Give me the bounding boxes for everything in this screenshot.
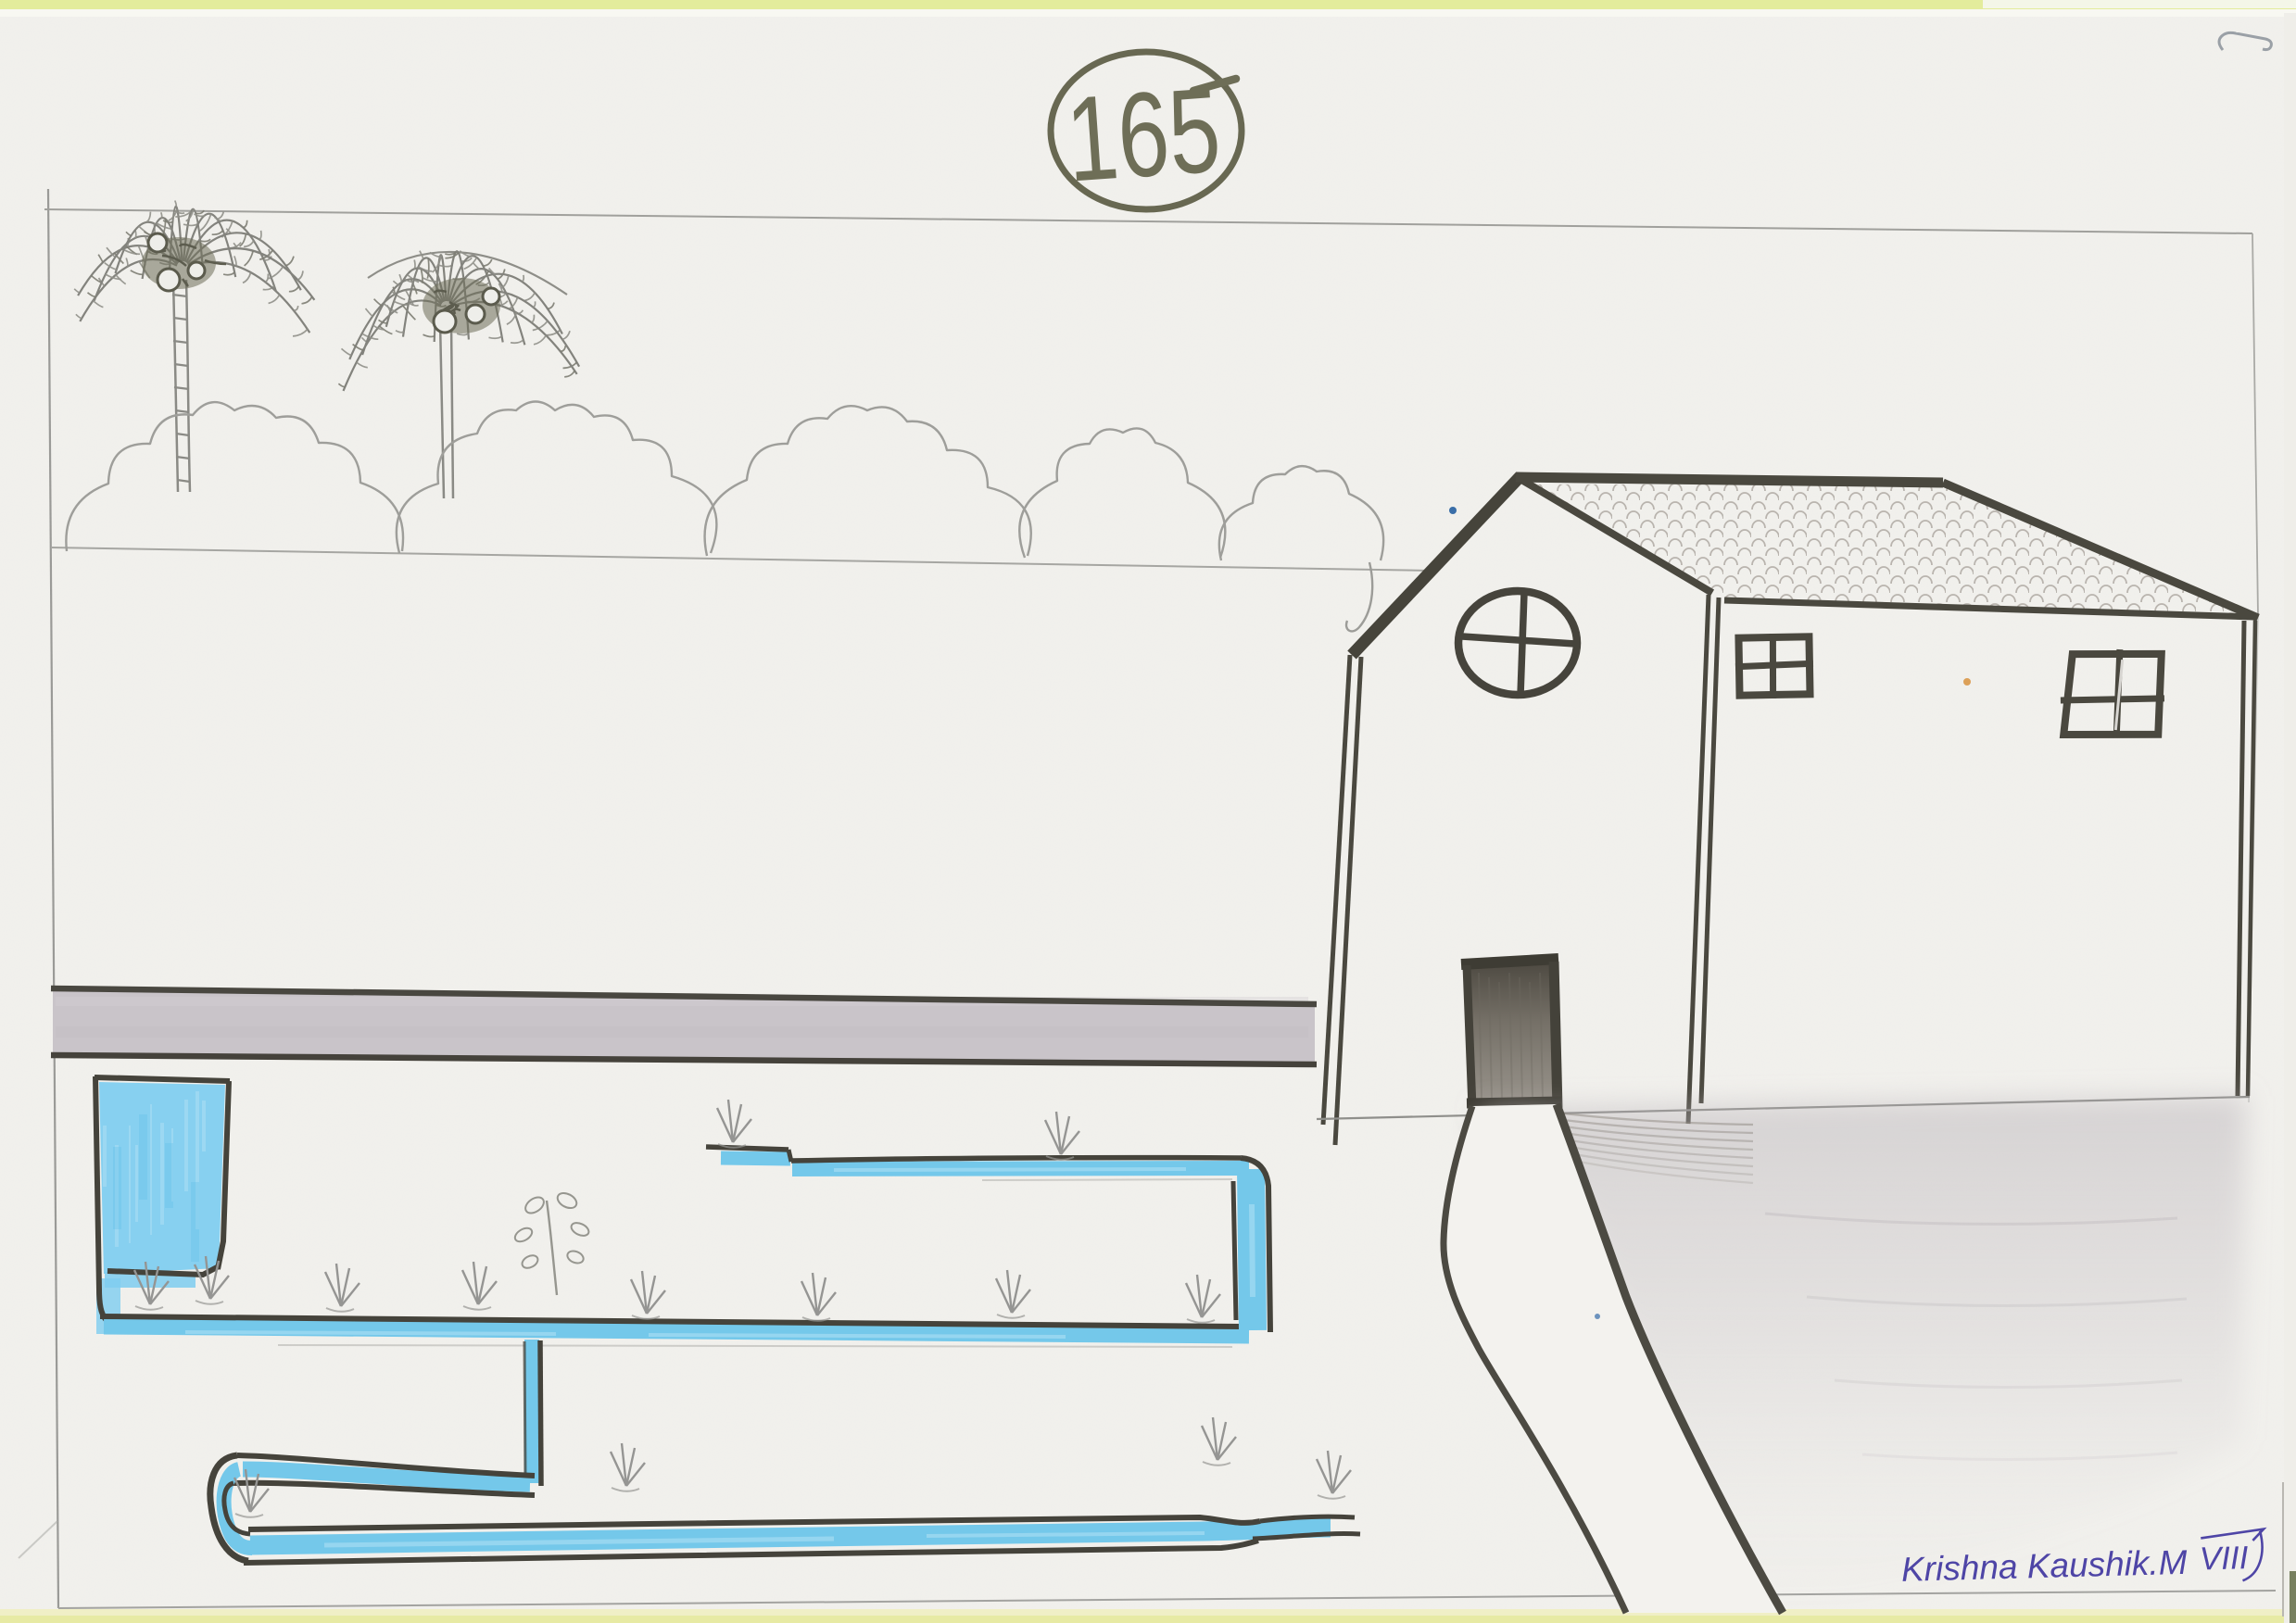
svg-text:VIII: VIII [2199, 1540, 2249, 1577]
svg-text:165: 165 [1062, 63, 1224, 208]
svg-text:Krishna Kaushik.M: Krishna Kaushik.M [1901, 1543, 2189, 1589]
